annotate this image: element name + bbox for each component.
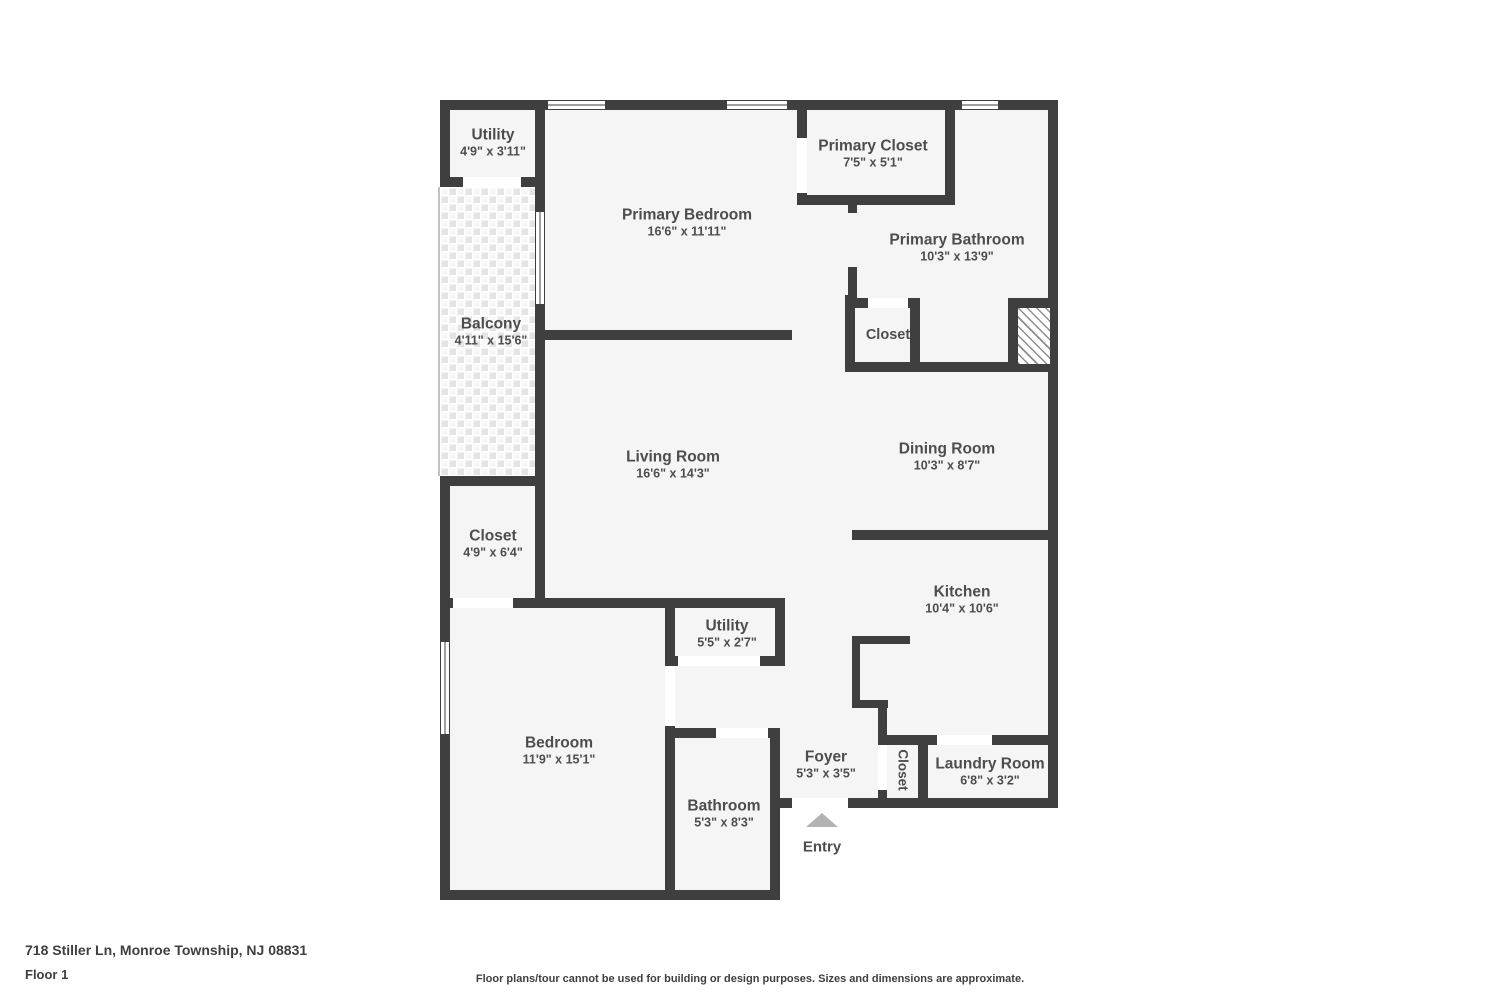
door-gap-utility2 [678,656,760,666]
room-dims: 5'3" x 8'3" [687,816,760,832]
room-name: Laundry Room [935,755,1044,774]
room-label-kitchen: Kitchen 10'4" x 10'6" [925,583,998,618]
wall-bathroom-right [770,728,780,900]
room-label-closet-primary-small: Closet [866,326,910,344]
room-name: Primary Bathroom [889,231,1024,250]
room-dims: 4'11" x 15'6" [455,334,528,350]
wall-kitchen-peninsula-1 [852,636,910,644]
room-label-foyer: Foyer 5'3" x 3'5" [796,748,856,783]
wall-living-bedroom-divider [545,330,792,340]
room-dims: 4'9" x 6'4" [463,546,523,562]
wall-pcloset2-right [910,298,920,372]
room-label-primary-bedroom: Primary Bedroom 16'6" x 11'11" [622,206,752,241]
wall-utility-left [440,100,450,187]
room-name: Primary Bedroom [622,206,752,225]
room-name: Balcony [455,315,528,334]
window-top-2 [727,100,787,110]
room-name: Utility [697,617,757,636]
wall-pbath-left-lower [848,267,857,302]
room-label-living-room: Living Room 16'6" x 14'3" [626,448,720,483]
window-balcony [535,212,545,304]
room-name: Living Room [626,448,720,467]
room-dims: 10'3" x 8'7" [899,459,995,475]
entry-label: Entry [803,839,841,856]
room-dims: 7'5" x 5'1" [818,156,927,172]
room-name: Bedroom [523,734,596,753]
room-dims: 10'4" x 10'6" [925,602,998,618]
wall-shaft-left [1008,298,1018,372]
door-gap-bathroom [716,728,768,738]
entry-arrow-icon [806,813,838,827]
door-gap-foyer-closet [878,742,887,790]
room-label-closet-mid: Closet 4'9" x 6'4" [463,527,523,562]
window-top-1 [548,100,605,110]
wall-pcloset-right [945,100,955,205]
shaft-hatch [1018,308,1050,364]
room-dims: 10'3" x 13'9" [889,250,1024,266]
room-name: Kitchen [925,583,998,602]
wall-closet-right [535,476,545,608]
wall-dining-bottom [852,530,1058,540]
wall-closet-left [440,476,450,608]
room-label-balcony: Balcony 4'11" x 15'6" [455,315,528,350]
room-label-laundry-room: Laundry Room 6'8" x 3'2" [935,755,1044,790]
room-label-utility-bottom: Utility 5'5" x 2'7" [697,617,757,652]
wall-kitchen-peninsula-3 [852,700,888,708]
door-gap-laundry [937,735,992,745]
room-dims: 16'6" x 14'3" [626,467,720,483]
room-label-primary-bathroom: Primary Bathroom 10'3" x 13'9" [889,231,1024,266]
room-name: Bathroom [687,797,760,816]
wall-bottom [440,890,780,900]
room-name: Dining Room [899,440,995,459]
window-bedroom-left [440,642,450,734]
room-label-primary-closet: Primary Closet 7'5" x 5'1" [818,137,927,172]
room-label-bedroom: Bedroom 11'9" x 15'1" [523,734,596,769]
wall-kitchen-peninsula-2 [852,636,860,708]
room-label-dining-room: Dining Room 10'3" x 8'7" [899,440,995,475]
door-gap-closet-mid [453,598,513,608]
wall-pcloset-bottom [797,195,955,205]
room-label-closet-foyer: Closet [894,749,911,790]
address-text: 718 Stiller Ln, Monroe Township, NJ 0883… [25,942,307,958]
room-name: Utility [460,126,526,145]
floor-label: Floor 1 [25,967,68,982]
room-dims: 6'8" x 3'2" [935,774,1044,790]
room-name: Closet [463,527,523,546]
room-dims: 4'9" x 3'11" [460,145,526,161]
room-name: Closet [866,326,910,344]
room-name: Foyer [796,748,856,767]
room-label-utility-top: Utility 4'9" x 3'11" [460,126,526,161]
door-gap-pcloset [797,138,807,193]
balcony-edge-line [438,187,440,476]
door-gap-bedroom [665,666,675,726]
wall-bedroom-divider [665,598,675,900]
window-top-3 [962,100,998,110]
disclaimer-text: Floor plans/tour cannot be used for buil… [476,973,1024,985]
room-name: Primary Closet [818,137,927,156]
room-label-bathroom: Bathroom 5'3" x 8'3" [687,797,760,832]
entry-door-gap [792,798,848,808]
door-gap-utility [463,177,521,187]
wall-right [1048,100,1058,808]
wall-closet-top [440,476,545,486]
room-dims: 16'6" x 11'11" [622,225,752,241]
room-dims: 5'3" x 3'5" [796,767,856,783]
room-dims: 5'5" x 2'7" [697,636,757,652]
room-dims: 11'9" x 15'1" [523,753,596,769]
door-gap-pcloset2 [868,298,908,308]
floor-plan: Utility 4'9" x 3'11" Primary Bedroom 16'… [0,0,1500,1000]
room-name: Closet [894,749,911,790]
wall-shaft-top [1008,298,1056,308]
wall-laundry-left [918,735,928,808]
